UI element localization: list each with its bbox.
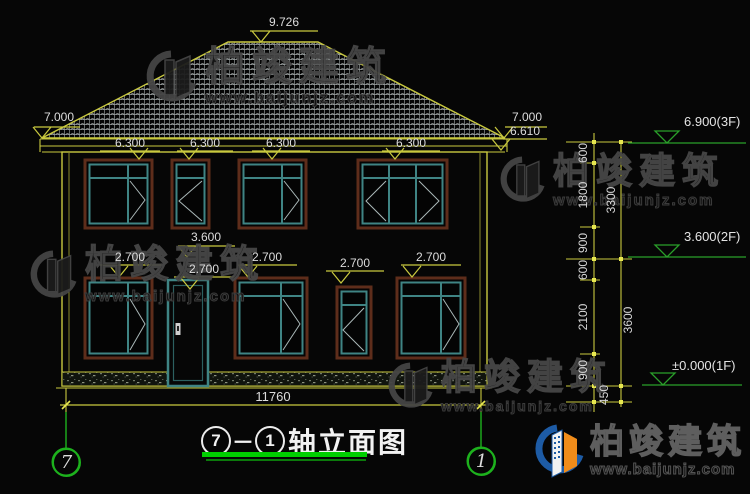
site-logo-url: www.baijunjz.com — [590, 461, 746, 478]
site-logo-brand: 柏竣建筑 — [590, 425, 746, 459]
watermark-url: www.baijunjz.com — [441, 398, 594, 414]
window-1f-3 — [337, 287, 371, 358]
axis-bubble-1: 1 — [467, 447, 496, 476]
dim-2f-head-2: 6.300 — [190, 137, 220, 150]
dim-1f-head-3: 2.700 — [340, 257, 370, 270]
dim-1f-head-2: 2.700 — [252, 251, 282, 264]
site-logo-icon — [534, 423, 584, 479]
window-2f-4 — [358, 160, 447, 228]
title-underline-thin — [206, 459, 366, 461]
dim-eave-right-upper: 7.000 — [512, 111, 542, 124]
level-3f: 6.900(3F) — [684, 114, 740, 129]
chain-2100: 2100 — [576, 304, 590, 331]
axis-bubble-7: 7 — [52, 448, 81, 477]
site-logo: 柏竣建筑 www.baijunjz.com — [534, 423, 746, 479]
dim-2f-head-4: 6.300 — [396, 137, 426, 150]
watermark-brand: 柏竣建筑 — [205, 46, 393, 88]
level-1f: ±0.000(1F) — [672, 358, 736, 373]
chain-3600: 3600 — [621, 307, 635, 334]
dim-2f-head-3: 6.300 — [266, 137, 296, 150]
watermark-logo-icon — [388, 359, 434, 413]
dim-total-width: 11760 — [255, 390, 290, 403]
chain-900a: 900 — [576, 233, 590, 253]
level-2f: 3.600(2F) — [684, 229, 740, 244]
window-2f-1 — [85, 160, 152, 228]
chain-450: 450 — [597, 385, 611, 405]
watermark-logo-icon — [146, 47, 198, 107]
chain-900b: 900 — [576, 360, 590, 380]
chain-3300: 3300 — [604, 187, 618, 214]
dim-1f-head-4: 2.700 — [416, 251, 446, 264]
dim-ridge: 9.726 — [269, 16, 299, 29]
chain-600a: 600 — [576, 143, 590, 163]
chain-600b: 600 — [576, 260, 590, 280]
chain-1800: 1800 — [576, 182, 590, 209]
watermark-top: 柏竣建筑 www.baijunjz.com — [146, 46, 393, 108]
dim-2f-head-1: 6.300 — [115, 137, 145, 150]
elevation-drawing-canvas: 柏竣建筑 www.baijunjz.com 柏竣建筑 www.baijunjz.… — [0, 0, 750, 494]
watermark-url: www.baijunjz.com — [85, 288, 246, 305]
window-2f-2 — [172, 160, 209, 228]
window-2f-3 — [239, 160, 306, 228]
watermark-url: www.baijunjz.com — [205, 90, 375, 108]
dim-1f-head-door: 2.700 — [189, 263, 219, 276]
watermark-logo-icon — [500, 153, 546, 207]
dim-mid: 3.600 — [191, 231, 221, 244]
dim-1f-head-1: 2.700 — [115, 251, 145, 264]
title-underline — [202, 452, 367, 457]
watermark-logo-icon — [30, 247, 78, 303]
watermark-left: 柏竣建筑 www.baijunjz.com — [30, 246, 265, 305]
window-1f-4 — [397, 278, 465, 358]
watermark-brand: 柏竣建筑 — [85, 246, 265, 286]
dim-eave-right-lower: 6.610 — [510, 125, 540, 138]
dim-eave-left: 7.000 — [44, 111, 74, 124]
